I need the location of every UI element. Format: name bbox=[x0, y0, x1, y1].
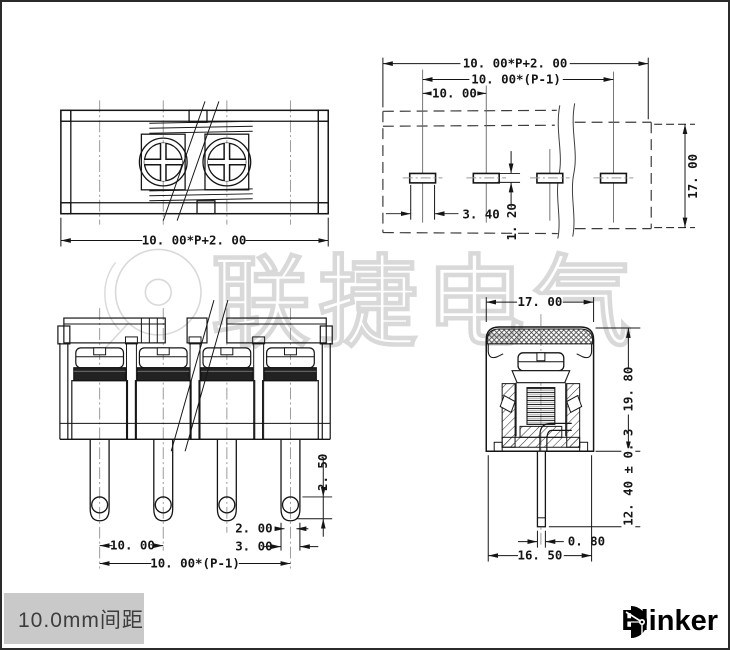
side-base-dim: 16. 50 bbox=[518, 548, 563, 563]
top-view-overall-dim: 10. 00*P+2. 00 bbox=[142, 232, 247, 247]
side-pin-length-dim: 12. 40 ± 0. 3 bbox=[620, 429, 635, 526]
front-hole-tip-dim: 2. 50 bbox=[315, 454, 330, 491]
side-height-dim: 19. 80 bbox=[620, 367, 635, 412]
side-width-dim: 17. 00 bbox=[518, 294, 563, 309]
front-pin-inner-dim: 2. 00 bbox=[235, 521, 272, 536]
watermark-logo bbox=[104, 249, 201, 349]
pcb-pitch-dim: 10. 00 bbox=[432, 85, 477, 100]
pcb-overall-dim: 10. 00*P+2. 00 bbox=[463, 56, 568, 71]
pcb-span-dim: 10. 00*(P-1) bbox=[471, 71, 561, 86]
front-pin-outer-dim: 3. 00 bbox=[235, 539, 272, 554]
side-pin-width-dim: 0. 80 bbox=[568, 534, 605, 549]
brand-logo: Elinker bbox=[621, 605, 718, 638]
pcb-slot-height-dim: 1. 20 bbox=[504, 203, 519, 240]
solder-pins bbox=[90, 439, 300, 520]
top-view bbox=[61, 100, 328, 246]
front-pitch-dim: 10. 00 bbox=[110, 538, 155, 553]
screw-top-1 bbox=[139, 138, 187, 186]
front-span-dim: 10. 00*(P-1) bbox=[150, 555, 240, 570]
pitch-caption-box: 10.0mm间距 bbox=[4, 593, 144, 644]
terminal-units bbox=[72, 348, 318, 439]
drawing-sheet: 联捷电气 bbox=[0, 0, 730, 650]
pitch-label: 10.0mm间距 bbox=[18, 604, 144, 634]
pcb-slot-width-dim: 3. 40 bbox=[462, 207, 499, 222]
engineering-drawing: 联捷电气 bbox=[2, 2, 728, 648]
elinker-icon bbox=[621, 605, 653, 639]
pcb-board-width-dim: 17. 00 bbox=[685, 154, 700, 199]
screw-top-2 bbox=[203, 138, 251, 186]
